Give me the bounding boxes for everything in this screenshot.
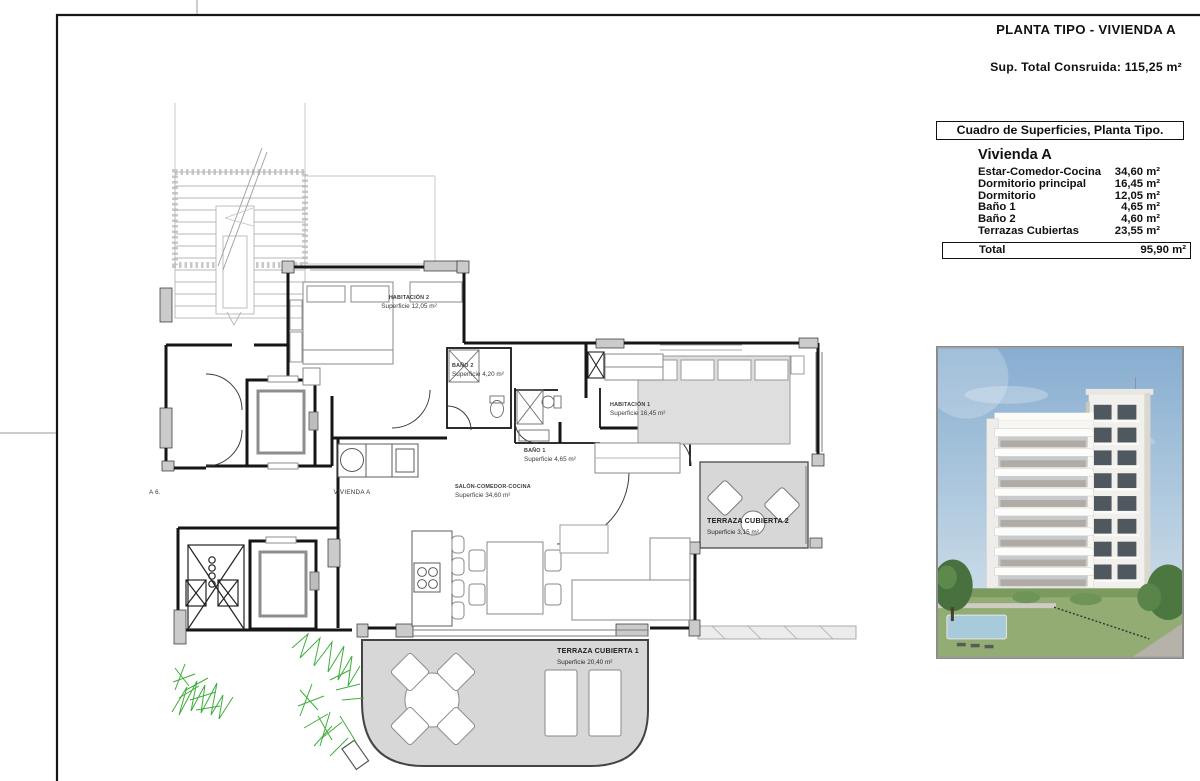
terraza2-name: TERRAZA CUBIERTA 2 <box>707 516 789 525</box>
salon-name: SALÓN-COMEDOR-COCINA <box>455 482 531 490</box>
bano2-name: BAÑO 2 <box>452 362 474 369</box>
bano2-fixtures <box>449 350 504 418</box>
surface-table-unit: Vivienda A <box>978 147 1184 163</box>
dining-set <box>469 542 561 614</box>
terraza2-area: Superficie 3,15 m² <box>707 529 759 536</box>
drawing-sheet: HABITACIÓN 2 Superficie 12,05 m² BAÑO 2 … <box>0 0 1200 781</box>
building-render-photo <box>936 346 1184 659</box>
surface-table-rows: Estar-Comedor-Cocina 34,60 m² Dormitorio… <box>978 167 1160 238</box>
bed-habitacion2 <box>303 282 462 385</box>
row-label: Dormitorio principal <box>978 179 1086 191</box>
surface-table-header: Cuadro de Superficies, Planta Tipo. <box>936 121 1184 140</box>
plan-title: PLANTA TIPO - VIVIENDA A <box>985 22 1187 37</box>
elevator-lower <box>250 537 319 629</box>
row-value: 16,45 m² <box>1115 179 1160 191</box>
elevator-upper <box>247 376 318 469</box>
row-value: 23,55 m² <box>1115 226 1160 238</box>
bano2-area: Superficie 4,20 m² <box>452 371 504 378</box>
built-area-total: Sup. Total Consruida: 115,25 m² <box>985 60 1187 74</box>
table-row: Terrazas Cubiertas 23,55 m² <box>978 226 1160 238</box>
building-tower <box>987 377 1154 620</box>
bano1-fixtures <box>517 390 561 441</box>
total-value: 95,90 m² <box>1140 244 1186 256</box>
ventilation-shaft <box>186 545 244 629</box>
title-block: PLANTA TIPO - VIVIENDA A Sup. Total Cons… <box>985 22 1187 74</box>
closet-habitacion2 <box>290 300 302 362</box>
exterior-hatch-band <box>698 626 856 639</box>
surface-table-total-row: Total 95,90 m² <box>942 242 1191 259</box>
vivienda-a-label: VIVIENDA A <box>333 489 371 496</box>
room-labels: HABITACIÓN 2 Superficie 12,05 m² BAÑO 2 … <box>149 293 789 666</box>
habitacion2-name: HABITACIÓN 2 <box>389 293 429 301</box>
terraza1-name: TERRAZA CUBIERTA 1 <box>557 646 639 655</box>
shaft-habitacion1 <box>588 352 604 378</box>
surface-table: Cuadro de Superficies, Planta Tipo. Vivi… <box>936 121 1184 259</box>
table-row: Dormitorio principal 16,45 m² <box>978 179 1160 191</box>
sofa <box>560 525 690 620</box>
pool <box>947 615 1007 639</box>
bano1-name: BAÑO 1 <box>524 447 546 454</box>
total-label: Total <box>979 244 1005 256</box>
salon-area: Superficie 34,60 m² <box>455 492 510 499</box>
plants <box>172 634 364 756</box>
habitacion1-area: Superficie 16,45 m² <box>610 410 665 417</box>
building-render-art <box>937 347 1183 658</box>
habitacion1-name: HABITACIÓN 1 <box>610 400 650 408</box>
row-label: Terrazas Cubiertas <box>978 226 1079 238</box>
kitchen <box>338 444 464 626</box>
habitacion2-area: Superficie 12,05 m² <box>381 303 436 310</box>
bano1-area: Superficie 4,65 m² <box>524 456 576 463</box>
terraza1-area: Superficie 20,40 m² <box>557 659 612 666</box>
vivienda-left-label: A 6. <box>149 489 161 496</box>
